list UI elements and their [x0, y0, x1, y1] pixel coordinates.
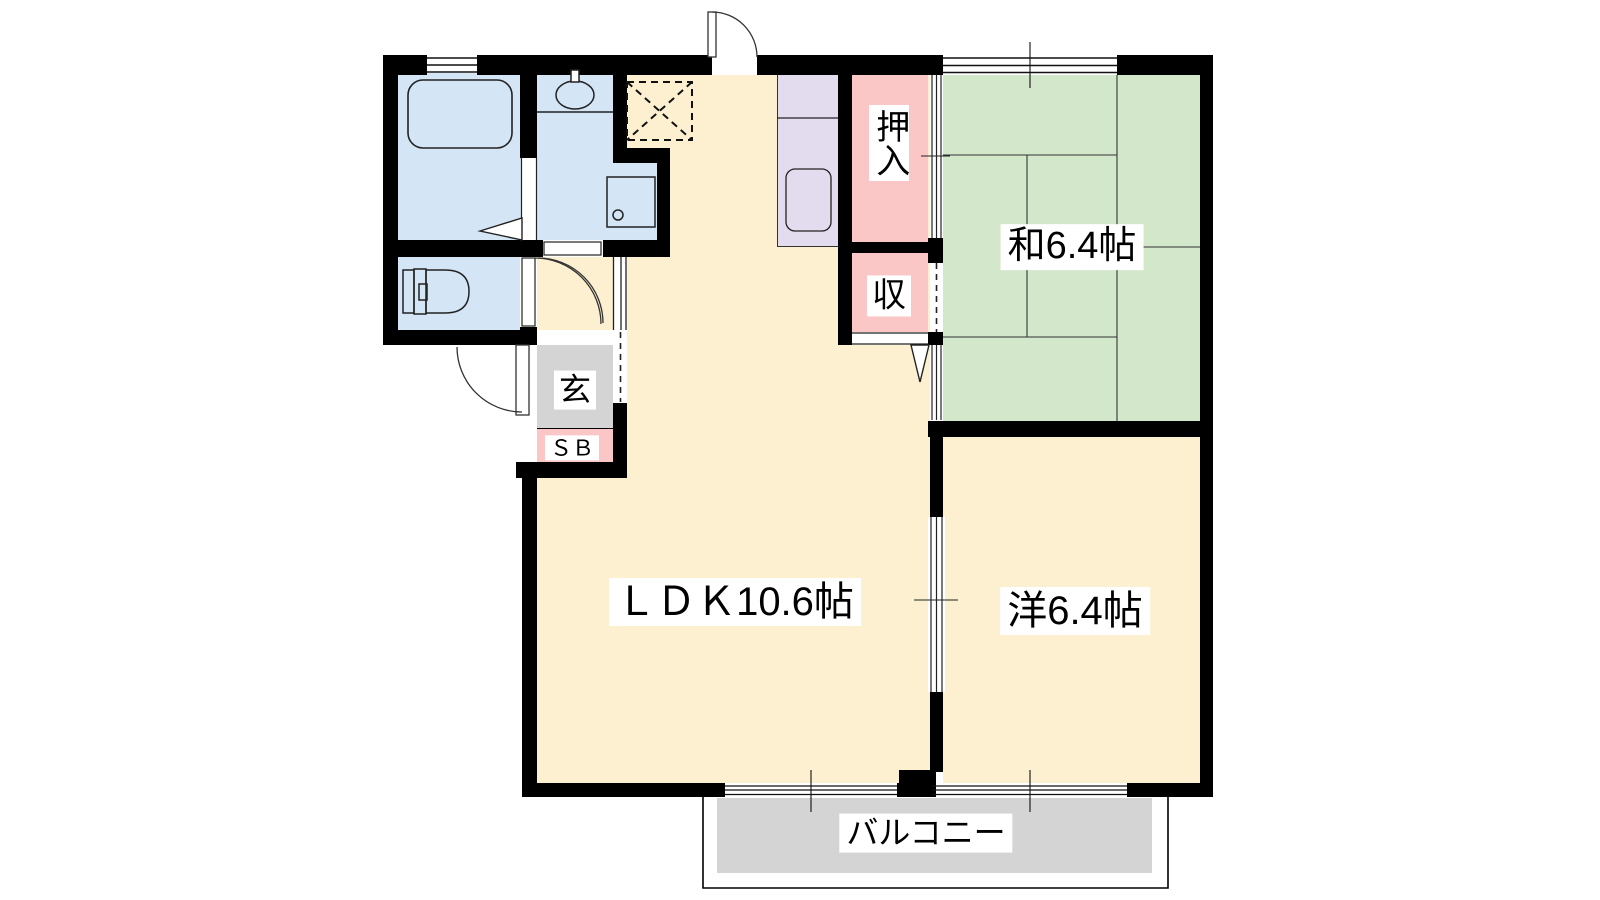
- wall: [928, 421, 1213, 437]
- washroom-door-gap: [543, 240, 603, 257]
- wall: [930, 437, 943, 517]
- wall: [1117, 55, 1213, 75]
- wall: [522, 783, 725, 797]
- label-balcony: バルコニー: [839, 814, 1012, 853]
- wall: [838, 253, 852, 345]
- wall: [838, 55, 852, 253]
- washing-machine-nook: [613, 163, 657, 240]
- wall: [1127, 783, 1213, 797]
- wall: [930, 692, 943, 772]
- wall: [383, 240, 543, 257]
- label-storage: 収: [867, 275, 911, 316]
- label-genkan: 玄: [554, 371, 596, 410]
- floor-plan: ＬＤＫ10.6帖 和6.4帖 洋6.4帖 バルコニー 押入 収 玄 ＳＢ: [0, 0, 1600, 900]
- wall: [897, 783, 932, 797]
- wall: [613, 403, 627, 478]
- storage-door-gap: [852, 332, 928, 345]
- wall: [516, 462, 626, 478]
- room-toilet: [398, 257, 520, 330]
- wall: [383, 330, 535, 345]
- bathroom-window: [427, 58, 477, 72]
- wall: [928, 238, 943, 263]
- opening-hall-ldk: [613, 253, 627, 330]
- wall: [383, 55, 398, 345]
- label-oshiire: 押入: [869, 105, 909, 181]
- top-door-gap: [712, 57, 757, 74]
- label-shoebox: ＳＢ: [545, 435, 599, 460]
- ldk-youshitsu-window-strip: [928, 517, 945, 692]
- wall: [657, 148, 670, 240]
- wall: [613, 148, 657, 163]
- passage-hall-genkan: [537, 330, 613, 345]
- wall: [520, 327, 537, 345]
- wall: [477, 55, 712, 75]
- room-bathroom: [398, 73, 522, 240]
- label-ldk: ＬＤＫ10.6帖: [609, 578, 861, 626]
- entrance-door: [457, 345, 529, 415]
- label-youshitsu: 洋6.4帖: [1000, 587, 1150, 635]
- wall: [1200, 55, 1213, 797]
- wall: [613, 55, 627, 148]
- wall: [603, 240, 670, 257]
- genkan-step-strip: [613, 330, 627, 403]
- label-washitsu: 和6.4帖: [1001, 224, 1144, 270]
- wall: [928, 332, 943, 345]
- kitchen-counter: [777, 75, 838, 247]
- wall: [520, 55, 537, 158]
- kitchen-service-door: [708, 12, 757, 57]
- wall: [522, 462, 537, 783]
- room-washroom: [537, 73, 613, 240]
